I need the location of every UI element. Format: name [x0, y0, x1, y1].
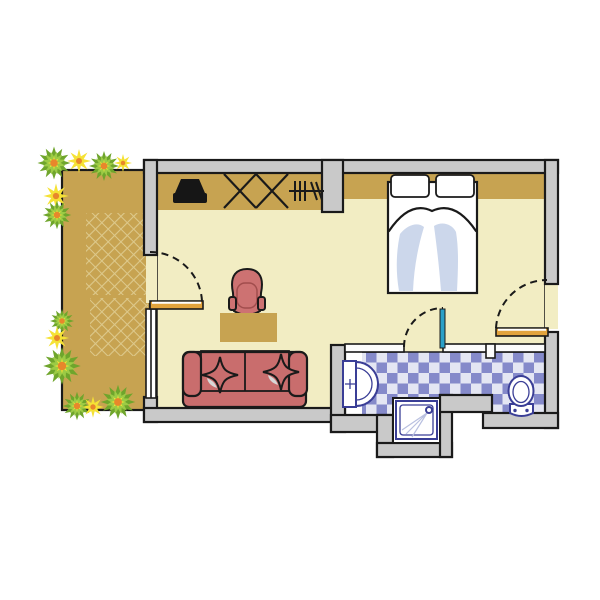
- sofa: [183, 351, 307, 407]
- entrance-opening: [545, 284, 558, 329]
- toilet: [509, 376, 534, 416]
- toilet-bowl: [509, 376, 534, 406]
- floor-plan-image: [0, 0, 600, 600]
- pillow: [436, 175, 474, 197]
- terrace-paving-hatch: [90, 298, 148, 356]
- top-wall: [144, 160, 558, 173]
- bathroom-partition-stub: [486, 344, 495, 358]
- terrace-paving-hatch: [86, 213, 148, 295]
- yellow-flower: [82, 396, 104, 418]
- pillow: [391, 175, 429, 197]
- toilet-hinge: [525, 409, 528, 412]
- yellow-flower: [67, 149, 91, 173]
- bathroom-bottom-wall-mid: [440, 395, 492, 412]
- shower: [393, 398, 440, 443]
- yellow-flower: [114, 154, 132, 172]
- floor-plan-svg: [0, 0, 600, 600]
- door-leaf: [440, 309, 445, 348]
- armchair: [229, 269, 265, 315]
- partition-stub: [322, 160, 343, 212]
- window: [146, 309, 156, 398]
- left-wall: [144, 160, 157, 255]
- terrace-door-opening: [146, 255, 157, 303]
- toilet-hinge: [513, 409, 516, 412]
- right-wall-upper: [545, 160, 558, 284]
- sofa-armrest: [183, 352, 201, 396]
- shower-head: [426, 407, 432, 413]
- desk: [220, 313, 277, 342]
- bathroom-partition-left: [345, 344, 404, 352]
- bottom-wall: [144, 408, 345, 422]
- double-bed: [388, 175, 477, 293]
- yellow-flower: [45, 326, 69, 350]
